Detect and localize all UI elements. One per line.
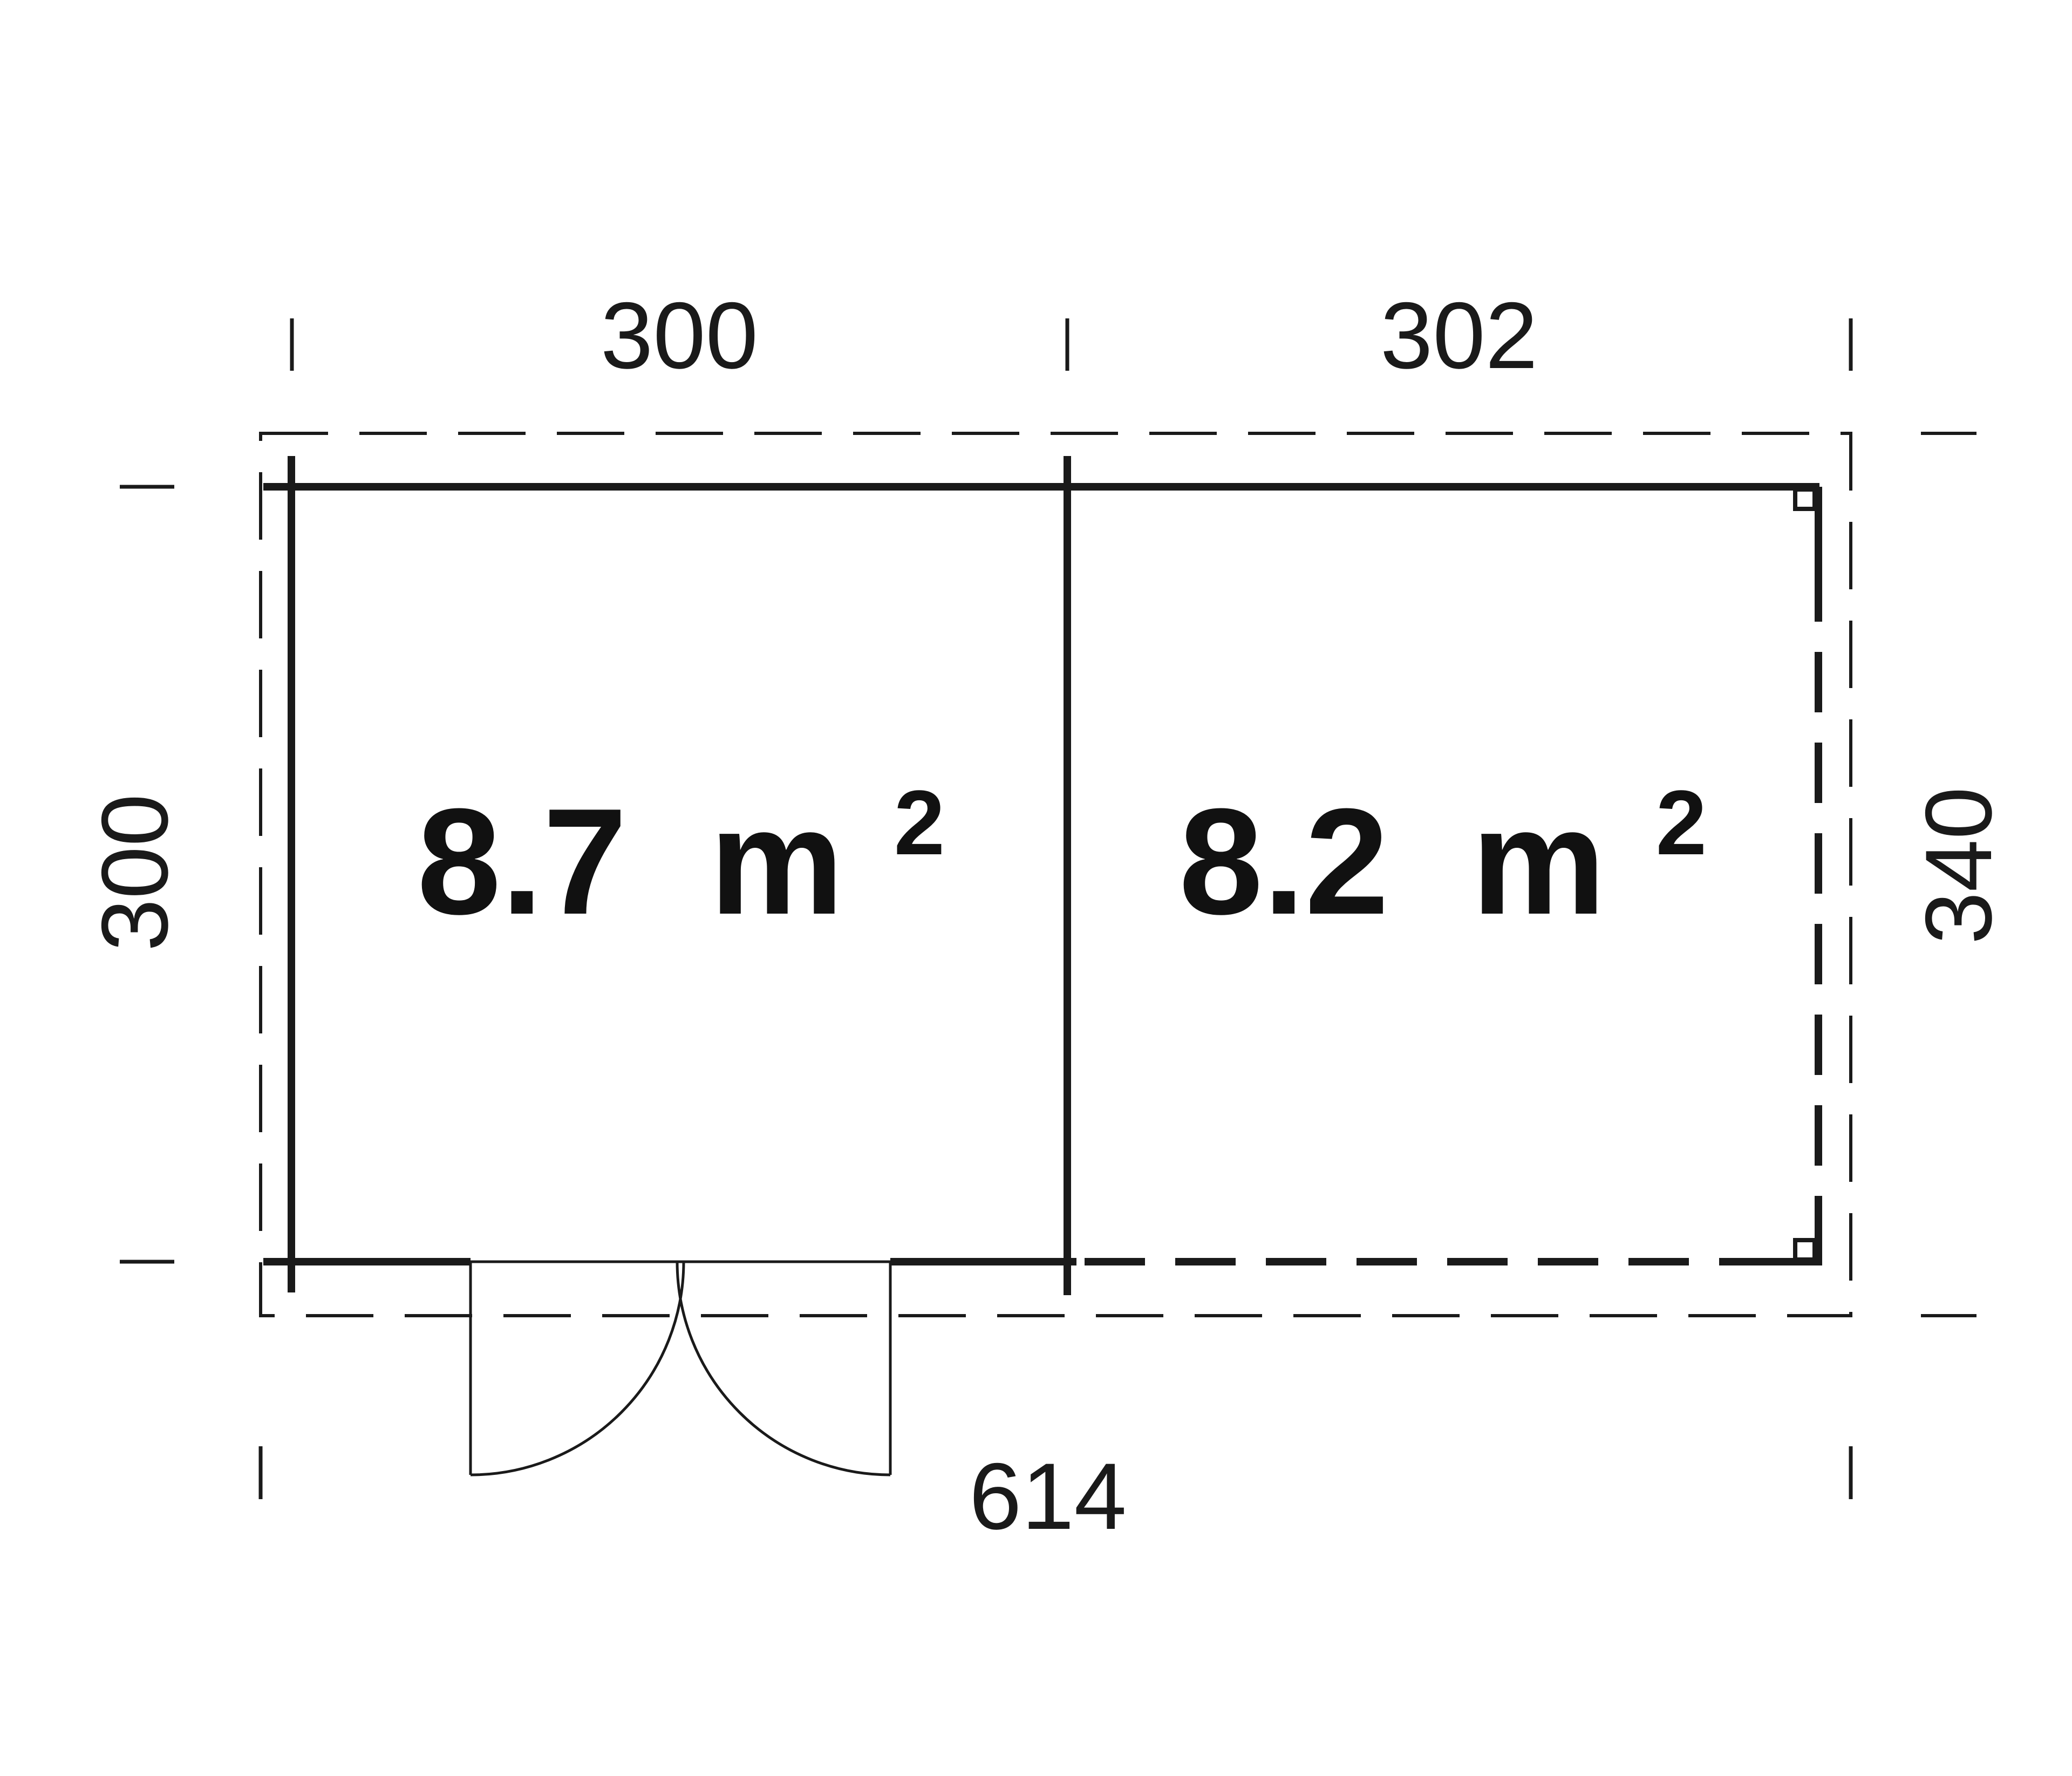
area-value-right: 8.2 (1179, 778, 1389, 946)
area-unit-right: m (1471, 778, 1606, 946)
corner-post-bottom-right (1795, 1240, 1815, 1260)
dimension-label-top-right: 302 (1380, 283, 1538, 389)
area-unit-left: m (710, 778, 844, 946)
dimension-label-left: 300 (83, 794, 188, 951)
area-value-left: 8.7 (417, 778, 627, 946)
floor-plan-drawing: 300 302 300 340 614 8.7 m 2 8.2 m 2 (0, 0, 2072, 1776)
area-exponent-left: 2 (894, 772, 945, 874)
dimension-label-bottom: 614 (969, 1444, 1127, 1549)
floor-plan-page: 300 302 300 340 614 8.7 m 2 8.2 m 2 (0, 0, 2072, 1776)
dimension-label-right: 340 (1906, 787, 2012, 944)
dimension-label-top-left: 300 (601, 283, 758, 389)
corner-post-top-right (1795, 489, 1815, 509)
area-exponent-right: 2 (1656, 772, 1707, 874)
